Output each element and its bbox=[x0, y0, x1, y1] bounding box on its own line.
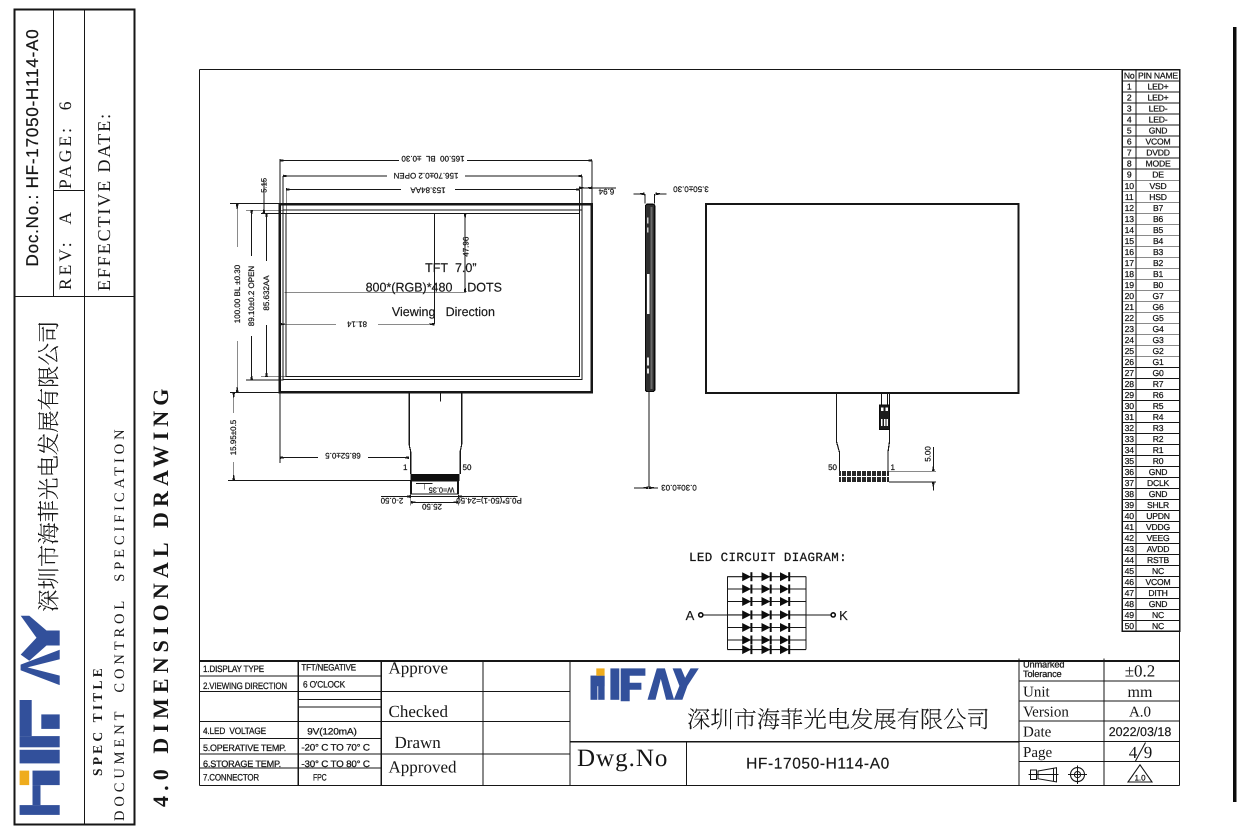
svg-text:VDDG: VDDG bbox=[1146, 522, 1171, 532]
svg-text:44: 44 bbox=[1125, 555, 1135, 565]
svg-text:B5: B5 bbox=[1153, 225, 1164, 235]
svg-text:5.00: 5.00 bbox=[924, 446, 933, 462]
svg-text:Dwg.No: Dwg.No bbox=[577, 745, 668, 772]
svg-text:156.70±0.2 OPEN: 156.70±0.2 OPEN bbox=[393, 171, 458, 180]
svg-text:SPEC TITLE: SPEC TITLE bbox=[90, 665, 105, 776]
svg-text:Direction: Direction bbox=[446, 305, 495, 319]
svg-text:R4: R4 bbox=[1153, 412, 1164, 422]
svg-text:15.95±0.5: 15.95±0.5 bbox=[229, 419, 238, 455]
svg-text:UPDN: UPDN bbox=[1146, 511, 1170, 521]
svg-text:100.00 BL ±0.30: 100.00 BL ±0.30 bbox=[233, 264, 242, 323]
svg-text:33: 33 bbox=[1125, 434, 1135, 444]
svg-text:PIN NAME: PIN NAME bbox=[1138, 71, 1178, 81]
svg-text:43: 43 bbox=[1125, 544, 1135, 554]
svg-text:24: 24 bbox=[1125, 335, 1135, 345]
svg-text:17: 17 bbox=[1125, 258, 1135, 268]
svg-text:1: 1 bbox=[1127, 82, 1132, 92]
svg-text:G4: G4 bbox=[1152, 324, 1163, 334]
svg-text:5.OPERATIVE TEMP.: 5.OPERATIVE TEMP. bbox=[203, 743, 286, 753]
svg-text:DVDD: DVDD bbox=[1146, 148, 1170, 158]
svg-text:9V(120mA): 9V(120mA) bbox=[307, 727, 357, 737]
svg-text:68.52±0.5: 68.52±0.5 bbox=[325, 451, 361, 460]
svg-text:31: 31 bbox=[1125, 412, 1135, 422]
svg-text:LED+: LED+ bbox=[1148, 82, 1169, 92]
svg-text:R0: R0 bbox=[1153, 456, 1164, 466]
svg-text:4: 4 bbox=[1127, 115, 1132, 125]
svg-text:81.14: 81.14 bbox=[346, 319, 367, 328]
svg-text:DOCUMENT CONTROL SPECIFICATI: DOCUMENT CONTROL SPECIFICATION bbox=[112, 426, 128, 821]
svg-text:REV: A: REV: A bbox=[55, 209, 75, 290]
svg-text:G5: G5 bbox=[1152, 313, 1163, 323]
svg-text:DOTS: DOTS bbox=[467, 281, 502, 295]
svg-text:Unit: Unit bbox=[1023, 685, 1051, 701]
svg-text:A: A bbox=[686, 608, 695, 623]
svg-text:85.632AA: 85.632AA bbox=[262, 275, 271, 311]
svg-text:B2: B2 bbox=[1153, 258, 1164, 268]
svg-text:MODE: MODE bbox=[1146, 159, 1171, 169]
svg-text:K: K bbox=[839, 608, 848, 623]
svg-text:16: 16 bbox=[1125, 247, 1135, 257]
svg-text:EFFECTIVE DATE:: EFFECTIVE DATE: bbox=[94, 112, 114, 291]
svg-text:49: 49 bbox=[1125, 610, 1135, 620]
svg-text:37: 37 bbox=[1125, 478, 1135, 488]
svg-text:5.15: 5.15 bbox=[259, 178, 268, 193]
svg-text:25: 25 bbox=[1125, 346, 1135, 356]
svg-text:GND: GND bbox=[1149, 599, 1168, 609]
svg-text:89.10±0.2 OPEN: 89.10±0.2 OPEN bbox=[247, 266, 256, 327]
svg-text:36: 36 bbox=[1125, 467, 1135, 477]
svg-text:800*(RGB)*480: 800*(RGB)*480 bbox=[366, 281, 453, 295]
svg-text:34: 34 bbox=[1125, 445, 1135, 455]
svg-text:2: 2 bbox=[1127, 93, 1132, 103]
svg-text:6 O'CLOCK: 6 O'CLOCK bbox=[303, 680, 346, 690]
svg-text:46: 46 bbox=[1125, 577, 1135, 587]
svg-text:2.VIEWING DIRECTION: 2.VIEWING DIRECTION bbox=[203, 681, 287, 691]
svg-text:SHLR: SHLR bbox=[1147, 500, 1169, 510]
svg-text:PAGE: 6: PAGE: 6 bbox=[55, 99, 75, 189]
svg-text:HF-17050-H114-A0: HF-17050-H114-A0 bbox=[746, 756, 890, 773]
svg-text:R5: R5 bbox=[1153, 401, 1164, 411]
svg-text:-20° C TO 70° C: -20° C TO 70° C bbox=[301, 743, 370, 753]
svg-text:9: 9 bbox=[1127, 170, 1132, 180]
svg-text:LED-: LED- bbox=[1149, 104, 1168, 114]
svg-text:VSD: VSD bbox=[1149, 181, 1166, 191]
svg-text:3.50±0.30: 3.50±0.30 bbox=[673, 185, 709, 194]
svg-text:50: 50 bbox=[1125, 621, 1135, 631]
svg-text:23: 23 bbox=[1125, 324, 1135, 334]
svg-text:42: 42 bbox=[1125, 533, 1135, 543]
svg-text:LED CIRCUIT DIAGRAM:: LED CIRCUIT DIAGRAM: bbox=[689, 551, 847, 565]
svg-text:Tolerance: Tolerance bbox=[1023, 669, 1062, 679]
svg-text:DE: DE bbox=[1152, 170, 1164, 180]
svg-text:G0: G0 bbox=[1152, 368, 1163, 378]
svg-text:45: 45 bbox=[1125, 566, 1135, 576]
svg-text:G6: G6 bbox=[1152, 302, 1163, 312]
svg-text:LED-: LED- bbox=[1149, 115, 1168, 125]
svg-text:DITH: DITH bbox=[1148, 588, 1167, 598]
svg-text:VCOM: VCOM bbox=[1146, 137, 1171, 147]
svg-text:39: 39 bbox=[1125, 500, 1135, 510]
svg-text:P0.5*(50-1)=24.50: P0.5*(50-1)=24.50 bbox=[456, 496, 522, 505]
svg-text:22: 22 bbox=[1125, 313, 1135, 323]
svg-text:6: 6 bbox=[1127, 137, 1132, 147]
svg-text:GND: GND bbox=[1149, 467, 1168, 477]
svg-text:12: 12 bbox=[1125, 203, 1135, 213]
svg-text:15: 15 bbox=[1125, 236, 1135, 246]
svg-text:TFT/NEGATIVE: TFT/NEGATIVE bbox=[301, 663, 356, 673]
svg-text:4.0 DIMENSIONAL DRAWING: 4.0 DIMENSIONAL DRAWING bbox=[148, 383, 173, 807]
svg-text:No: No bbox=[1124, 71, 1135, 81]
svg-text:VEEG: VEEG bbox=[1146, 533, 1170, 543]
svg-text:1.DISPLAY TYPE: 1.DISPLAY TYPE bbox=[203, 664, 264, 674]
svg-text:R2: R2 bbox=[1153, 434, 1164, 444]
svg-text:VCOM: VCOM bbox=[1146, 577, 1171, 587]
svg-text:30: 30 bbox=[1125, 401, 1135, 411]
svg-text:2-0.50: 2-0.50 bbox=[380, 496, 403, 505]
svg-text:RSTB: RSTB bbox=[1147, 555, 1170, 565]
svg-text:10: 10 bbox=[1125, 181, 1135, 191]
svg-text:6.STORAGE TEMP.: 6.STORAGE TEMP. bbox=[203, 759, 281, 769]
svg-text:20: 20 bbox=[1125, 291, 1135, 301]
svg-text:28: 28 bbox=[1125, 379, 1135, 389]
svg-text:NC: NC bbox=[1152, 610, 1164, 620]
svg-text:W=0.35: W=0.35 bbox=[429, 486, 455, 495]
svg-text:165.00 BL ±0.30: 165.00 BL ±0.30 bbox=[401, 154, 465, 163]
svg-text:FPC: FPC bbox=[313, 773, 327, 783]
svg-text:47: 47 bbox=[1125, 588, 1135, 598]
svg-text:7.CONNECTOR: 7.CONNECTOR bbox=[203, 773, 259, 783]
svg-text:41: 41 bbox=[1125, 522, 1135, 532]
svg-text:3: 3 bbox=[1127, 104, 1132, 114]
svg-text:B0: B0 bbox=[1153, 280, 1164, 290]
svg-text:B7: B7 bbox=[1153, 203, 1164, 213]
svg-text:G7: G7 bbox=[1152, 291, 1163, 301]
svg-text:Page: Page bbox=[1023, 745, 1053, 761]
svg-text:B6: B6 bbox=[1153, 214, 1164, 224]
svg-text:2022/03/18: 2022/03/18 bbox=[1109, 725, 1172, 739]
svg-text:0.30±0.03: 0.30±0.03 bbox=[661, 483, 697, 492]
svg-text:Approve: Approve bbox=[389, 659, 448, 678]
svg-text:R3: R3 bbox=[1153, 423, 1164, 433]
svg-text:NC: NC bbox=[1152, 621, 1164, 631]
svg-text:GND: GND bbox=[1149, 126, 1168, 136]
svg-text:26: 26 bbox=[1125, 357, 1135, 367]
svg-text:HSD: HSD bbox=[1149, 192, 1167, 202]
svg-text:1: 1 bbox=[403, 463, 408, 472]
svg-text:G3: G3 bbox=[1152, 335, 1163, 345]
svg-text:Date: Date bbox=[1023, 725, 1052, 741]
svg-text:A.0: A.0 bbox=[1129, 705, 1151, 721]
svg-text:Doc.No.: HF-17050-H114-A0: Doc.No.: HF-17050-H114-A0 bbox=[23, 29, 42, 267]
svg-text:9: 9 bbox=[1144, 743, 1153, 762]
svg-text:G2: G2 bbox=[1152, 346, 1163, 356]
svg-text:Approved: Approved bbox=[389, 758, 457, 777]
svg-text:±0.2: ±0.2 bbox=[1125, 662, 1156, 681]
svg-text:35: 35 bbox=[1125, 456, 1135, 466]
svg-text:G1: G1 bbox=[1152, 357, 1163, 367]
svg-text:TFT 7.0”: TFT 7.0” bbox=[425, 261, 476, 275]
svg-text:19: 19 bbox=[1125, 280, 1135, 290]
svg-text:R7: R7 bbox=[1153, 379, 1164, 389]
svg-text:13: 13 bbox=[1125, 214, 1135, 224]
svg-text:6.94: 6.94 bbox=[598, 187, 614, 196]
svg-text:AVDD: AVDD bbox=[1147, 544, 1169, 554]
svg-text:38: 38 bbox=[1125, 489, 1135, 499]
svg-text:4.LED VOLTAGE: 4.LED VOLTAGE bbox=[203, 726, 266, 736]
svg-text:R1: R1 bbox=[1153, 445, 1164, 455]
svg-text:GND: GND bbox=[1149, 489, 1168, 499]
svg-text:R6: R6 bbox=[1153, 390, 1164, 400]
svg-text:47.96: 47.96 bbox=[461, 236, 470, 257]
svg-text:B4: B4 bbox=[1153, 236, 1164, 246]
svg-text:Checked: Checked bbox=[389, 702, 449, 721]
svg-text:25.50: 25.50 bbox=[421, 502, 442, 511]
svg-text:B3: B3 bbox=[1153, 247, 1164, 257]
svg-text:LED+: LED+ bbox=[1148, 93, 1169, 103]
svg-text:48: 48 bbox=[1125, 599, 1135, 609]
svg-text:27: 27 bbox=[1125, 368, 1135, 378]
svg-text:Drawn: Drawn bbox=[395, 733, 442, 752]
svg-text:Version: Version bbox=[1023, 705, 1069, 721]
svg-text:8: 8 bbox=[1127, 159, 1132, 169]
svg-text:50: 50 bbox=[463, 463, 472, 472]
svg-text:1: 1 bbox=[891, 463, 896, 472]
svg-text:32: 32 bbox=[1125, 423, 1135, 433]
svg-text:Viewing: Viewing bbox=[392, 305, 436, 319]
svg-text:7: 7 bbox=[1127, 148, 1132, 158]
svg-text:21: 21 bbox=[1125, 302, 1135, 312]
svg-text:5: 5 bbox=[1127, 126, 1132, 136]
svg-text:Unmarked: Unmarked bbox=[1023, 660, 1064, 670]
svg-text:B1: B1 bbox=[1153, 269, 1164, 279]
svg-text:mm: mm bbox=[1128, 684, 1153, 701]
svg-text:11: 11 bbox=[1125, 192, 1134, 202]
svg-text:40: 40 bbox=[1125, 511, 1135, 521]
svg-text:-30° C TO 80° C: -30° C TO 80° C bbox=[301, 759, 370, 769]
svg-text:DCLK: DCLK bbox=[1147, 478, 1170, 488]
svg-text:1.0: 1.0 bbox=[1134, 774, 1146, 783]
svg-text:14: 14 bbox=[1125, 225, 1135, 235]
svg-text:50: 50 bbox=[828, 463, 837, 472]
svg-text:153.84AA: 153.84AA bbox=[410, 185, 446, 194]
svg-text:18: 18 bbox=[1125, 269, 1135, 279]
svg-text:NC: NC bbox=[1152, 566, 1164, 576]
svg-text:29: 29 bbox=[1125, 390, 1135, 400]
